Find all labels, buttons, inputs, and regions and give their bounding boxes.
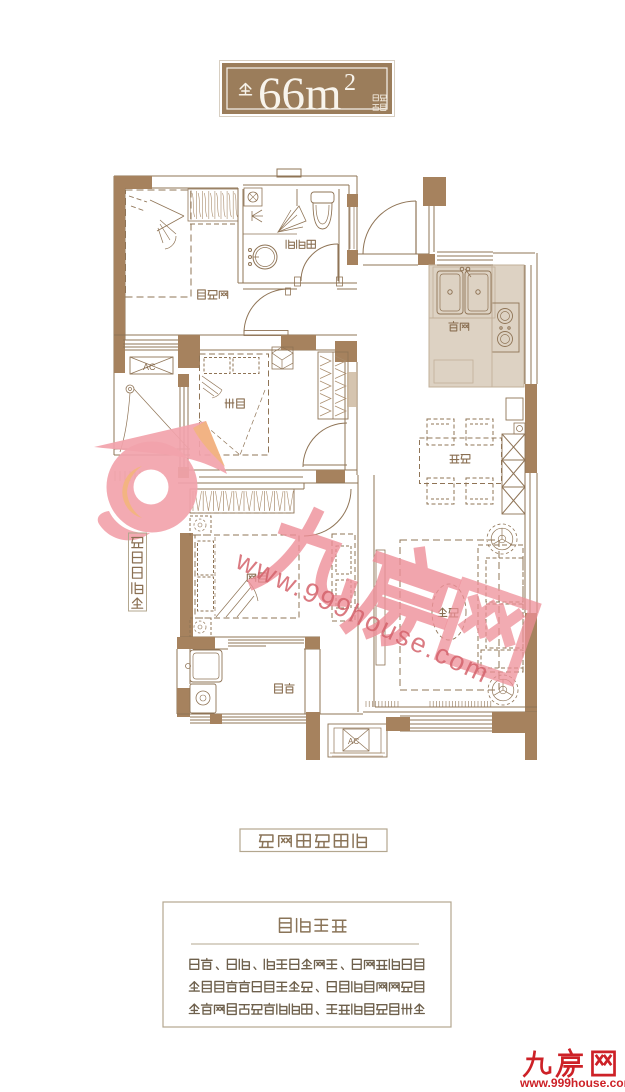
svg-text:2: 2	[344, 70, 356, 96]
svg-text:AC: AC	[348, 737, 359, 746]
svg-text:66m: 66m	[258, 68, 342, 120]
svg-text:www.999house.com: www.999house.com	[519, 1076, 625, 1090]
svg-text:AC: AC	[143, 362, 156, 372]
